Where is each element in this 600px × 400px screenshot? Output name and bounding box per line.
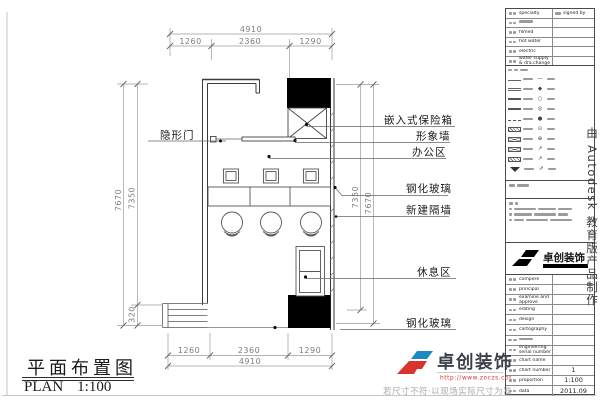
legend-symbol: ↗ <box>535 146 545 152</box>
info-row-value <box>552 295 594 304</box>
info-row-value <box>552 336 594 345</box>
sofa <box>296 247 325 297</box>
xbox-sample <box>508 147 521 152</box>
dim-top-seg2: 2360 <box>239 37 261 46</box>
dim-bottom-seg1: 1260 <box>178 346 200 355</box>
title-block: specialty signed by filmed hot water ele <box>505 8 595 395</box>
dim-top-total: 4910 <box>240 25 262 34</box>
linetype-sample <box>508 80 521 81</box>
legend-symbol: ◎ <box>535 106 545 112</box>
label-new-partition: 新建隔墙 <box>406 204 452 217</box>
disclaimer-text: 若尺寸不符·以现场实际尺寸为准 <box>383 385 515 397</box>
info-row-label: chart number <box>519 368 552 373</box>
brand-logo-mark <box>512 259 532 266</box>
info-row-value <box>552 285 594 294</box>
label-tempered-glass-bottom: 钢化玻璃 <box>406 317 452 330</box>
sign-row-right <box>552 19 594 28</box>
sign-row-label: hot water <box>519 39 552 44</box>
legend: — ◆ ○ ◎ ● ⊙ ⊕ ↗ ↗ ⇗ <box>506 66 594 181</box>
sign-row-right <box>552 57 594 67</box>
info-row-value: 1:100 <box>552 376 594 385</box>
legend-row: ● <box>506 114 594 124</box>
legend-symbol: ⊕ <box>535 136 545 142</box>
logo-mark-blue <box>411 351 433 359</box>
info-row-value <box>552 325 594 334</box>
xbox-sample <box>508 137 521 142</box>
brand-name: 卓创装饰 <box>543 251 585 264</box>
label-safe: 嵌入式保险箱 <box>384 114 453 127</box>
hatch-sample <box>508 127 521 132</box>
dim-right-inner: 7350 <box>351 186 360 208</box>
info-row-label: proportion <box>519 378 552 383</box>
linetype-sample <box>508 120 521 121</box>
legend-symbol: ◆ <box>535 86 545 92</box>
legend-row: ↗ <box>506 144 594 154</box>
legend-symbol: ↗ <box>535 156 545 162</box>
sign-row-label: specialty <box>519 11 552 16</box>
chairs <box>222 212 322 236</box>
legend-symbol: ⇗ <box>536 166 546 172</box>
linetype-sample <box>508 98 521 101</box>
info-row-value: 2011.09 <box>552 386 594 396</box>
label-office-area: 办公区 <box>412 146 447 159</box>
sign-row-right <box>552 38 594 47</box>
company-url: http://www.zoczs.com <box>440 376 511 382</box>
info-row-label: editing <box>519 307 552 312</box>
notes <box>506 199 594 243</box>
title-underline <box>22 377 134 379</box>
info-row-label: examine and approve <box>519 295 552 305</box>
dim-top-seg1: 1260 <box>179 37 201 46</box>
info-row-value: 1 <box>552 366 594 375</box>
drawing-sheet: 4910 1260 2360 1290 1260 2360 1290 4910 … <box>0 0 600 400</box>
dim-left-outer: 7670 <box>114 189 123 211</box>
info-row-label: cartography <box>519 327 552 332</box>
info-table: compere principal examine and approve ed… <box>506 275 594 396</box>
linetype-sample <box>508 108 521 111</box>
brand-logo-mark <box>521 250 539 257</box>
legend-row: — <box>506 74 594 84</box>
legend-symbol: ○ <box>535 96 545 102</box>
drawing-title-en: PLAN 1:100 <box>24 379 111 396</box>
entry-steps <box>163 304 208 328</box>
plan-word: PLAN <box>24 379 63 396</box>
dim-left-step: 320 <box>128 306 137 323</box>
column-block-top <box>287 78 331 108</box>
brand-tagline-bar <box>543 264 588 268</box>
legend-row: ◎ <box>506 104 594 114</box>
monitors <box>224 169 319 183</box>
sign-row-label: water supply & dra.change <box>519 56 552 66</box>
info-row-label: design <box>519 317 552 322</box>
hatch-sample <box>508 157 521 162</box>
legend-row: ⊕ <box>506 134 594 144</box>
illegible-zh <box>506 60 519 63</box>
info-row-label: principal <box>519 287 552 292</box>
legend-row: ⊙ <box>506 124 594 134</box>
info-row-label: chart name <box>519 358 552 363</box>
label-hidden-door: 隐形门 <box>160 129 195 142</box>
company-logo: 卓创装饰 http://www.zoczs.com <box>393 343 511 389</box>
legend-row: ⇗ <box>506 164 594 174</box>
label-image-wall: 形象墙 <box>416 130 451 143</box>
illegible-zh <box>506 22 519 25</box>
sign-row-label: electric <box>519 49 552 54</box>
legend-header <box>506 66 594 74</box>
linetype-sample <box>508 88 521 91</box>
legend-symbol: ⊙ <box>535 126 545 132</box>
column-block-bottom <box>288 295 331 328</box>
legend-symbol: — <box>535 76 545 82</box>
dim-bottom-total: 4910 <box>239 357 261 366</box>
info-row-value <box>552 305 594 314</box>
legend-row: ◆ <box>506 84 594 94</box>
partition-hatch <box>331 112 335 292</box>
info-row-value <box>552 356 594 365</box>
illegible-zh <box>506 41 519 44</box>
dim-top-seg3: 1290 <box>299 37 321 46</box>
logo-mark-red <box>397 361 427 374</box>
company-name: 卓创装饰 <box>437 352 511 373</box>
info-row-value <box>552 346 594 355</box>
legend-row: ↗ <box>506 154 594 164</box>
info-row-label: engineering serial number <box>519 345 552 355</box>
illegible-zh <box>506 31 519 34</box>
plan-scale: 1:100 <box>77 379 111 396</box>
sign-row-right: signed by <box>552 9 594 18</box>
dim-bottom-seg3: 1290 <box>299 346 321 355</box>
legend-symbol: ● <box>535 116 545 122</box>
office-desk <box>208 187 331 206</box>
titleblock-spacer <box>506 181 594 199</box>
legend-row: ○ <box>506 94 594 104</box>
info-row-value <box>552 275 594 284</box>
brand-block: 卓创装饰 <box>506 243 594 275</box>
dim-left-inner: 7350 <box>128 187 137 209</box>
label-rest-area: 休息区 <box>417 266 452 279</box>
info-row-label: data <box>519 389 552 394</box>
info-row-label: compere <box>519 277 552 282</box>
sign-row-right <box>552 47 594 56</box>
sign-row-label: filmed <box>519 30 552 35</box>
illegible-zh <box>506 12 519 15</box>
triangle-sample <box>510 167 520 172</box>
info-row-label <box>519 338 552 343</box>
sign-row-label <box>519 20 552 25</box>
info-row-value <box>552 315 594 324</box>
illegible-zh <box>506 50 519 53</box>
sign-row-right <box>552 28 594 37</box>
label-tempered-glass-top: 钢化玻璃 <box>406 182 452 195</box>
dim-bottom-seg2: 2360 <box>238 346 260 355</box>
brand-logo: 卓创装饰 <box>506 243 594 274</box>
sign-table: specialty signed by filmed hot water ele <box>506 9 594 66</box>
